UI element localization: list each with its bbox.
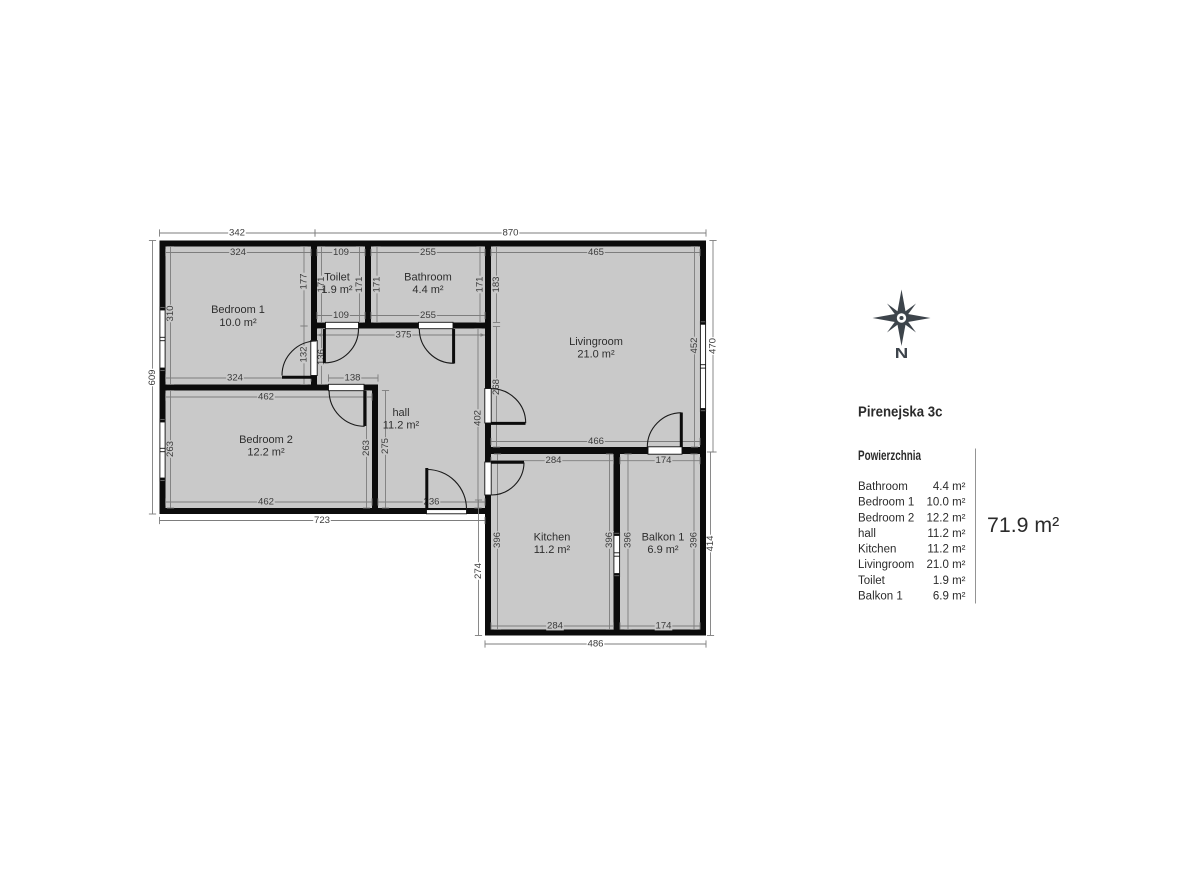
svg-text:11.2 m²: 11.2 m² [927, 528, 965, 540]
svg-text:109: 109 [333, 247, 349, 258]
svg-text:Bedroom 2: Bedroom 2 [239, 434, 293, 446]
svg-text:Balkon 1: Balkon 1 [642, 532, 685, 544]
svg-text:6.9 m²: 6.9 m² [647, 544, 679, 556]
svg-text:263: 263 [165, 441, 176, 457]
svg-text:Livingroom: Livingroom [858, 559, 914, 571]
svg-text:21.0 m²: 21.0 m² [927, 559, 966, 571]
svg-text:414: 414 [705, 535, 716, 552]
svg-text:465: 465 [588, 247, 604, 258]
svg-text:71.9 m²: 71.9 m² [987, 513, 1059, 537]
svg-text:4.4 m²: 4.4 m² [412, 284, 444, 296]
svg-text:452: 452 [689, 337, 700, 353]
svg-text:Kitchen: Kitchen [858, 544, 896, 556]
svg-text:1.9 m²: 1.9 m² [933, 575, 966, 587]
svg-text:174: 174 [655, 455, 672, 466]
svg-text:10.0 m²: 10.0 m² [219, 317, 257, 329]
svg-text:171: 171 [372, 276, 383, 292]
svg-text:109: 109 [333, 310, 349, 321]
svg-text:486: 486 [587, 639, 603, 650]
svg-text:255: 255 [420, 310, 436, 321]
svg-text:396: 396 [604, 532, 615, 548]
svg-text:310: 310 [165, 305, 176, 321]
svg-text:466: 466 [588, 436, 604, 447]
svg-text:396: 396 [689, 532, 700, 548]
svg-text:132: 132 [299, 346, 310, 362]
svg-text:324: 324 [227, 373, 244, 384]
svg-text:255: 255 [420, 247, 436, 258]
svg-text:hall: hall [858, 528, 876, 540]
svg-text:342: 342 [229, 228, 245, 239]
svg-text:284: 284 [545, 455, 562, 466]
svg-text:174: 174 [655, 621, 672, 632]
svg-text:723: 723 [314, 515, 330, 526]
svg-text:12.2 m²: 12.2 m² [927, 512, 966, 524]
svg-text:Bathroom: Bathroom [404, 272, 452, 284]
svg-text:470: 470 [708, 338, 719, 354]
svg-text:Kitchen: Kitchen [534, 532, 571, 544]
svg-text:870: 870 [502, 228, 518, 239]
svg-text:263: 263 [361, 440, 372, 456]
svg-text:11.2 m²: 11.2 m² [383, 420, 420, 432]
svg-text:274: 274 [473, 562, 484, 579]
svg-text:Balkon 1: Balkon 1 [858, 591, 903, 603]
svg-text:402: 402 [473, 410, 484, 426]
svg-text:396: 396 [492, 532, 503, 548]
svg-text:12.2 m²: 12.2 m² [247, 447, 285, 459]
svg-text:609: 609 [147, 369, 158, 385]
svg-text:11.2 m²: 11.2 m² [534, 544, 571, 556]
svg-text:Livingroom: Livingroom [569, 336, 623, 348]
svg-text:Bathroom: Bathroom [858, 481, 908, 493]
svg-text:462: 462 [258, 392, 274, 403]
svg-text:Toilet: Toilet [858, 575, 886, 587]
svg-text:Bedroom 2: Bedroom 2 [858, 512, 914, 524]
svg-text:275: 275 [380, 438, 391, 454]
svg-text:Bedroom 1: Bedroom 1 [211, 304, 265, 316]
svg-text:4.4 m²: 4.4 m² [933, 481, 966, 493]
svg-text:375: 375 [395, 330, 411, 341]
svg-text:N: N [895, 346, 909, 362]
svg-text:6.9 m²: 6.9 m² [933, 591, 966, 603]
svg-text:hall: hall [392, 407, 409, 419]
svg-text:177: 177 [299, 273, 310, 289]
svg-text:396: 396 [623, 532, 634, 548]
svg-text:1.9 m²: 1.9 m² [321, 284, 353, 296]
svg-text:183: 183 [491, 276, 502, 292]
svg-text:171: 171 [475, 276, 486, 292]
svg-text:284: 284 [547, 621, 564, 632]
svg-text:324: 324 [230, 247, 247, 258]
svg-text:171: 171 [354, 276, 365, 292]
svg-text:138: 138 [344, 373, 360, 384]
svg-text:268: 268 [491, 379, 502, 395]
svg-text:11.2 m²: 11.2 m² [927, 544, 965, 556]
svg-text:10.0 m²: 10.0 m² [927, 497, 966, 509]
svg-text:21.0 m²: 21.0 m² [577, 349, 615, 361]
svg-text:Bedroom 1: Bedroom 1 [858, 497, 914, 509]
svg-text:Powierzchnia: Powierzchnia [858, 447, 921, 463]
svg-text:462: 462 [258, 497, 274, 508]
svg-text:Pirenejska 3c: Pirenejska 3c [858, 404, 943, 421]
svg-text:Toilet: Toilet [324, 272, 350, 284]
